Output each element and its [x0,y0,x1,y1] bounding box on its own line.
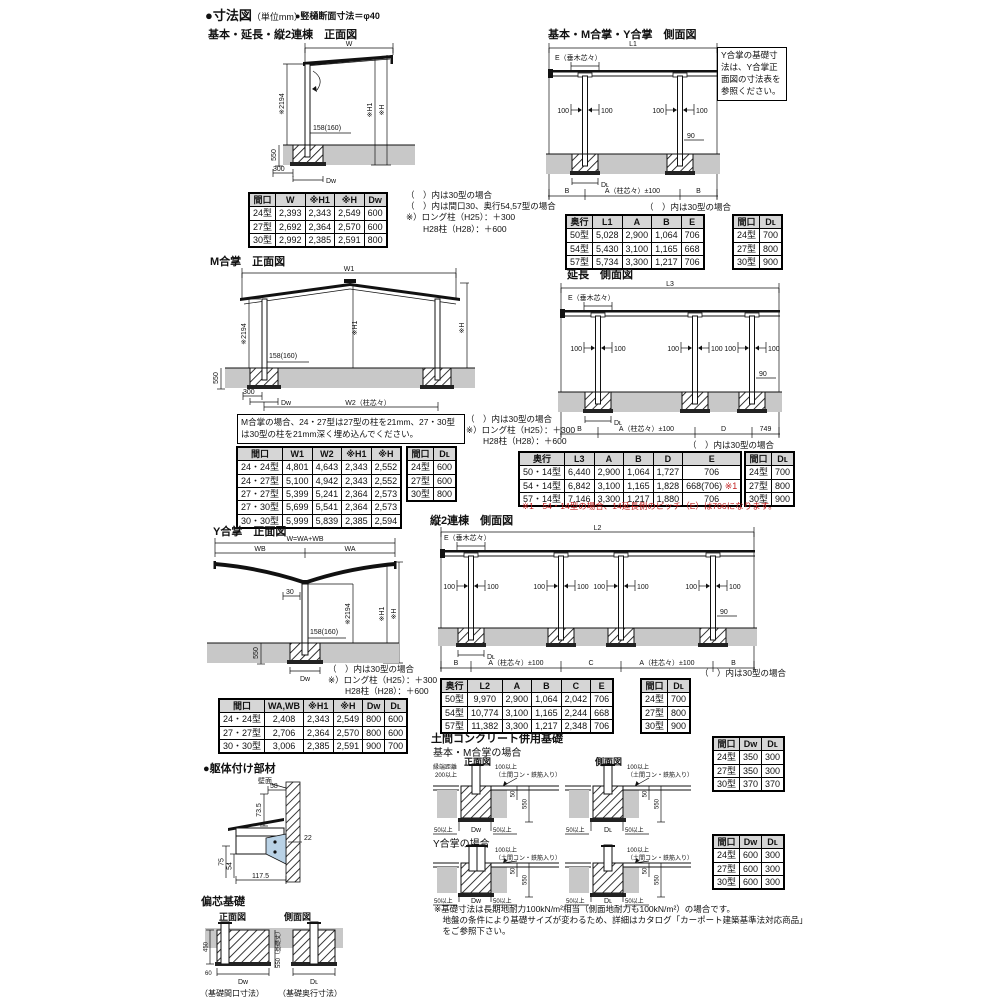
svg-text:※2194: ※2194 [345,603,352,625]
column-header: Dʟ [385,699,408,713]
table-cell: 2,385 [342,514,372,528]
segment-label: B [731,660,736,667]
table-cell: 600 [434,461,457,474]
table-cell: 27型 [641,706,668,719]
table-cell: 27・27型 [219,726,265,739]
table-cell: 50・14型 [519,466,565,479]
table-cell: 800 [363,713,385,726]
svg-text:※H1: ※H1 [352,320,359,335]
footing-base [680,409,710,413]
dim-label-post-width: 158(160) [313,125,341,132]
column-header: 間口 [641,679,668,693]
svg-text:54: 54 [227,862,234,870]
doma-note: ※基礎寸法は長期地耐力100kN/m²相当（側面地耐力も100kN/m²）の場合… [434,904,808,938]
table-row: 24型2,3932,3432,549600 [249,207,387,220]
table-cell: 2,552 [371,461,401,474]
table-row: 27型600 [407,474,456,487]
svg-text:※H: ※H [391,609,398,620]
pitch-100-label: 100 [577,584,589,591]
column-header: B [652,215,682,229]
svg-text:73.5: 73.5 [256,803,263,817]
over50-label: 50以上 [493,826,512,834]
table-cell: 600 [740,862,762,875]
table-cell: 4,643 [312,461,342,474]
table-cell: 24型 [713,849,740,862]
table-cell: 2,364 [304,726,334,739]
column-header: 間口 [407,447,434,461]
top-dim-label: L3 [666,281,674,288]
table-cell: 370 [740,778,762,792]
table-row: 27・27型2,7062,3642,570800600 [219,726,407,739]
svg-text:WA: WA [344,546,355,553]
segment-label: B [577,426,582,433]
footing-base [590,893,626,897]
table-cell: 54型 [566,242,593,255]
table-cell: 300 [762,862,785,875]
table-cell: 1,064 [652,229,682,242]
column-header: Dʟ [668,679,691,693]
table-row: 30型370370 [713,778,784,792]
table-cell: 27型 [733,242,760,255]
downpipe-note: ●竪樋断面寸法＝φ40 [295,9,380,22]
table-cell: 3,100 [594,479,624,492]
table-cell: 668 [681,242,704,255]
column-header: C [561,679,591,693]
column-header: Dʟ [762,737,785,751]
table-cell: 350 [740,764,762,777]
table-cell: 2,364 [342,501,372,514]
eccentric-side-caption: （基礎奥行寸法） [278,988,342,999]
over100-label: 100以上 [495,846,517,854]
dim-label-dw: Dᴡ [326,178,337,185]
column-header: D [653,452,683,466]
table-cell: 2,591 [333,740,363,754]
table-cell: 900 [760,256,783,270]
svg-text:※H1: ※H1 [379,606,386,621]
table-cell: 2,364 [342,488,372,501]
footing-base [698,643,728,647]
soil-left [569,867,589,893]
table-cell: 2,706 [265,726,304,739]
table-cell: 706 [591,693,614,706]
doma-table2: 間口DᴡDʟ24型60030027型60030030型600300 [712,834,785,890]
side-ext-dl-table: 間口Dʟ24型70027型80030型900 [744,451,795,507]
soil-right [491,867,507,893]
svg-text:60: 60 [205,971,212,977]
pitch-100-label: 100 [557,108,569,115]
segment-label: B [454,660,459,667]
table-row: 24型700 [733,229,782,242]
column-header: 間口 [733,215,760,229]
table-cell: 24型 [713,751,740,764]
soil-right [623,790,639,818]
column-header: 間口 [713,737,740,751]
side-basic-table: 奥行L1ABE50型5,0282,9001,06470654型5,4303,10… [565,214,705,270]
column-header: A [594,452,624,466]
front-m-diagram: W1 ※2194 ※H1 ※H 158(160) 550 300 Dᴡ W2（柱… [213,266,475,412]
table-cell: 1,064 [624,466,654,479]
column-header: W2 [312,447,342,461]
dim-label-2194: ※2194 [279,93,286,115]
gutter-cap [560,309,565,318]
table-cell: 30型 [249,234,276,248]
table-cell: 300 [762,876,785,890]
doma-front1-diagram: 縁端距離200以上100以上（土間コン・鉄筋入り）5055050以上Dᴡ50以上 [433,762,561,834]
eccentric-side-diagram: Dʟ [283,922,345,986]
table-cell: 5,399 [283,488,313,501]
table-cell: 2,364 [305,220,335,233]
rebar-label: （土間コン・鉄筋入り） [495,771,561,779]
table-cell: 27型 [249,220,276,233]
segment-label: A（柱芯々）±100 [619,424,674,433]
column-header: ※H1 [342,447,372,461]
roof-left-wing [215,562,303,584]
gutter-cap [548,69,553,78]
side-tandem-dl-table: 間口Dʟ24型70027型80030型900 [640,678,691,734]
page-title: ●寸法図（単位mm） [205,5,303,24]
over50-label: 50以上 [625,826,644,834]
soil-right [623,867,639,893]
table-cell: 2,348 [561,720,591,734]
table-cell: 800 [772,479,795,492]
footing-base [290,162,326,166]
column-header: Dʟ [760,215,783,229]
table-cell: 600 [364,220,387,233]
pitch-100-label: 100 [667,346,679,353]
table-row: 30型800 [407,488,456,502]
table-cell: 300 [762,764,785,777]
front-m-table: 間口W1W2※H1※H24・24型4,8014,6432,3432,55224・… [236,446,402,529]
front-m-dl-table: 間口Dʟ24型60027型60030型800 [406,446,457,502]
svg-text:※2194: ※2194 [241,323,248,345]
dim-550-label: 550 [523,798,529,809]
table-cell: 706 [683,466,742,479]
table-cell: 668(706) ※1 [683,479,742,492]
table-cell: 3,006 [265,740,304,754]
table-cell: 300 [762,751,785,764]
pitch-100-label: 100 [696,108,708,115]
segment-label: C [588,660,593,667]
table-cell: 50型 [441,693,468,706]
table-row: 50・14型6,4402,9001,0641,727706 [519,466,741,479]
table-cell: 3,100 [622,242,652,255]
table-row: 27型800 [733,242,782,255]
svg-text:W=WA+WB: W=WA+WB [286,536,323,543]
segment-label: A（柱芯々）±100 [605,186,660,195]
column-header: 奥行 [441,679,468,693]
table-row: 30型900 [733,256,782,270]
svg-text:550: 550 [253,647,260,659]
foundation-width-label: Dᴡ [471,827,482,834]
bracket-title: ●躯体付け部材 [203,760,276,776]
table-row: 54・14型6,8423,1001,1651,828668(706) ※1 [519,479,741,492]
svg-text:WB: WB [254,546,266,553]
doma-side2-diagram: 100以上（土間コン・鉄筋入り）5055050以上Dʟ50以上 [565,845,693,905]
rafter-pitch-label: E（垂木芯々） [444,533,491,542]
table-cell: 800 [363,726,385,739]
table-cell: 600 [364,207,387,220]
front-y-table: 間口WA,WB※H1※HDᴡDʟ24・24型2,4082,3432,549800… [218,698,408,754]
over100-label: 100以上 [627,846,649,854]
dim-90-label: 90 [687,133,695,140]
table-cell: 300 [762,849,785,862]
roof-panel [303,55,393,66]
soil-right [491,790,507,818]
side-basic-note: （ ）内は30型の場合 [645,202,731,213]
table-row: 27・27型5,3995,2412,3642,573 [237,488,401,501]
footing-base [590,818,626,822]
wall-hatch [286,782,300,882]
table-cell: 2,570 [333,726,363,739]
column-header: L1 [593,215,623,229]
column-header: E [683,452,742,466]
table-cell: 6,842 [565,479,595,492]
front-m-notes: （ ）内は30型の場合※）ロング柱（H25）：＋300 H28柱（H28）：＋6… [466,414,575,448]
dim-550-label: 550 [655,874,661,885]
segment-label: 749 [760,426,772,433]
column-header: 間口 [249,193,276,207]
side-ext-diagram: L3E（垂木芯々）10010010010010010090DʟBA（柱芯々）±1… [560,280,780,440]
table-cell: 24・24型 [237,461,283,474]
table-cell: 27型 [745,479,772,492]
segment-label: B [565,188,570,195]
table-cell: 4,801 [283,461,313,474]
rafter-pitch-label: E（垂木芯々） [555,53,602,62]
table-cell: 2,343 [342,474,372,487]
table-cell: 30型 [713,876,740,890]
svg-text:Dᴡ: Dᴡ [281,400,292,407]
column-header: Dᴡ [740,835,762,849]
table-cell: 1,165 [652,242,682,255]
table-cell: 600 [385,726,408,739]
footing-base [570,171,600,175]
table-cell: 5,541 [312,501,342,514]
table-row: 24・24型4,8014,6432,3432,552 [237,461,401,474]
table-cell: 27型 [713,764,740,777]
column-header: Dʟ [434,447,457,461]
front-basic-notes: （ ）内は30型の場合（ ）内は間口30、奥行54,57型の場合※）ロング柱（H… [406,190,556,235]
roof-right-wing [307,562,395,584]
footing-base [665,171,695,175]
table-cell: 2,900 [594,466,624,479]
table-cell: 5,028 [593,229,623,242]
side-tandem-note: （ ）内は30型の場合 [700,668,786,679]
table-cell: 2,570 [335,220,365,233]
pitch-100-label: 100 [768,346,780,353]
table-row: 50型5,0282,9001,064706 [566,229,704,242]
pitch-100-label: 100 [593,584,605,591]
svg-text:200以上: 200以上 [435,771,457,779]
table-cell: 27型 [407,474,434,487]
table-cell: 24型 [407,461,434,474]
table-row: 24・24型2,4082,3432,549800600 [219,713,407,726]
table-row: 24型350300 [713,751,784,764]
column-header: 間口 [237,447,283,461]
doma-table1: 間口DᴡDʟ24型35030027型35030030型370370 [712,736,785,792]
mount-bracket [266,834,286,864]
table-cell: 2,552 [371,474,401,487]
column-header: B [624,452,654,466]
table-cell: 24・24型 [219,713,265,726]
segment-label: A（柱芯々）±100 [488,658,543,667]
table-cell: 600 [740,849,762,862]
table-row: 54型5,4303,1001,165668 [566,242,704,255]
svg-text:30: 30 [286,589,294,596]
column-header: E [681,215,704,229]
column-header: ※H1 [304,699,334,713]
table-cell: 2,900 [502,693,532,706]
table-cell: 30型 [641,720,668,734]
table-cell: 24・27型 [237,474,283,487]
column-header: 間口 [745,452,772,466]
table-cell: 3,100 [502,706,532,719]
svg-text:22: 22 [304,835,312,842]
doma-side1-diagram: 100以上（土間コン・鉄筋入り）5055050以上Dʟ50以上 [565,762,693,834]
post [305,64,310,145]
table-row: 27型800 [745,479,794,492]
gutter-hook [391,55,394,64]
svg-text:Dᴡ: Dᴡ [300,676,311,683]
rebar-label: （土間コン・鉄筋入り） [627,771,693,779]
over50-label: 50以上 [566,826,585,834]
table-cell: 54型 [441,706,468,719]
svg-text:75: 75 [219,858,226,866]
table-cell: 27・27型 [237,488,283,501]
pitch-100-label: 100 [614,346,626,353]
table-cell: 2,549 [333,713,363,726]
side-ext-note: （ ）内は30型の場合 [688,440,774,451]
offset-post [221,922,229,964]
footing-base [606,643,636,647]
foundation-width-label: Dʟ [604,827,612,834]
edge-distance-label: 縁端距離 [433,763,457,771]
table-row: 24・27型5,1004,9422,3432,552 [237,474,401,487]
dim-label-h1: ※H1 [367,102,374,117]
column-header: 奥行 [566,215,593,229]
table-cell: 27・30型 [237,501,283,514]
roof-panel [240,283,460,301]
table-row: 27・30型5,6995,5412,3642,573 [237,501,401,514]
table-cell: 2,549 [335,207,365,220]
front-m-notebox: M合掌の場合、24・27型は27型の柱を21mm、27・30型は30型の柱を21… [237,414,465,444]
table-row: 27型350300 [713,764,784,777]
center-post [310,922,318,964]
post [472,764,480,794]
column-header: W1 [283,447,313,461]
svg-text:550（基礎丈）: 550（基礎丈） [274,928,282,968]
over100-label: 100以上 [627,763,649,771]
footing-base [737,409,767,413]
table-cell: 2,408 [265,713,304,726]
segment-label: B [696,188,701,195]
pitch-100-label: 100 [570,346,582,353]
table-cell: 1,217 [652,256,682,270]
side-tandem-table: 奥行L2ABCE50型9,9702,9001,0642,04270654型10,… [440,678,614,734]
table-cell: 10,774 [468,706,503,719]
column-header: A [502,679,532,693]
table-cell: 2,692 [276,220,306,233]
table-cell: 24型 [641,693,668,706]
table-cell: 700 [760,229,783,242]
table-cell: 2,385 [305,234,335,248]
dim-50-label: 50 [643,790,649,797]
table-cell: 1,165 [532,706,562,719]
table-cell: 2,992 [276,234,306,248]
dim-label-h: ※H [379,105,386,116]
table-cell: 9,970 [468,693,503,706]
front-basic-table: 間口W※H1※HDᴡ24型2,3932,3432,54960027型2,6922… [248,192,388,248]
table-row: 24型600 [407,461,456,474]
dim-label-w: W [346,41,353,48]
side-tandem-diagram: L2E（垂木芯々）10010010010010010010010090DʟBA（… [440,524,755,674]
svg-text:117.5: 117.5 [252,873,269,880]
table-cell: 900 [363,740,385,754]
table-cell: 2,343 [305,207,335,220]
segment-label: A（柱芯々）±100 [639,658,694,667]
table-cell: 30型 [733,256,760,270]
column-header: Dᴡ [740,737,762,751]
roof-beam [560,310,780,313]
table-cell: 2,385 [304,740,334,754]
roof-beam [440,550,755,553]
table-cell: 1,727 [653,466,683,479]
side-ext-table: 奥行L3ABDE50・14型6,4402,9001,0641,72770654・… [518,451,742,507]
pitch-100-label: 100 [652,108,664,115]
soil-left [569,790,589,818]
column-header: 間口 [219,699,265,713]
pitch-100-label: 100 [685,584,697,591]
column-header: WA,WB [265,699,304,713]
table-cell: 800 [364,234,387,248]
table-row: 54型10,7743,1001,1652,244668 [441,706,613,719]
dim-90-label: 90 [720,609,728,616]
table-cell: 1,165 [624,479,654,492]
doma-front2-diagram: 100以上（土間コン・鉄筋入り）5055050以上Dᴡ50以上 [433,845,561,905]
post [604,764,612,794]
table-cell: 700 [772,466,795,479]
footing-base [458,893,494,897]
svg-text:300: 300 [243,389,255,396]
svg-text:550: 550 [213,372,220,384]
dim-label-w1: W1 [344,266,355,273]
table-cell: 800 [760,242,783,255]
table-cell: 5,241 [312,488,342,501]
pitch-100-label: 100 [487,584,499,591]
column-header: ※H [333,699,363,713]
table-cell: 30型 [713,778,740,792]
dim-50-label: 50 [511,790,517,797]
column-header: Dʟ [762,835,785,849]
dim-50-label: 50 [643,867,649,874]
svg-text:158(160): 158(160) [310,629,338,636]
front-y-notes: （ ）内は30型の場合※）ロング柱（H25）：＋300 H28柱（H28）：＋6… [328,664,437,698]
table-row: 27型2,6922,3642,570600 [249,220,387,233]
table-row: 30・30型3,0062,3852,591900700 [219,740,407,754]
gutter-cap [440,549,445,558]
column-header: 奥行 [519,452,565,466]
column-header: A [622,215,652,229]
svg-text:158(160): 158(160) [269,353,297,360]
front-basic-diagram: W ※2194 158(160) 550 300 Dᴡ ※H1 ※H [225,40,415,190]
over50-label: 50以上 [434,826,453,834]
column-header: Dᴡ [363,699,385,713]
table-cell: 700 [385,740,408,754]
table-cell: 2,591 [335,234,365,248]
column-header: W [276,193,306,207]
over100-label: 100以上 [495,763,517,771]
column-header: E [591,679,614,693]
table-cell: 706 [681,256,704,270]
